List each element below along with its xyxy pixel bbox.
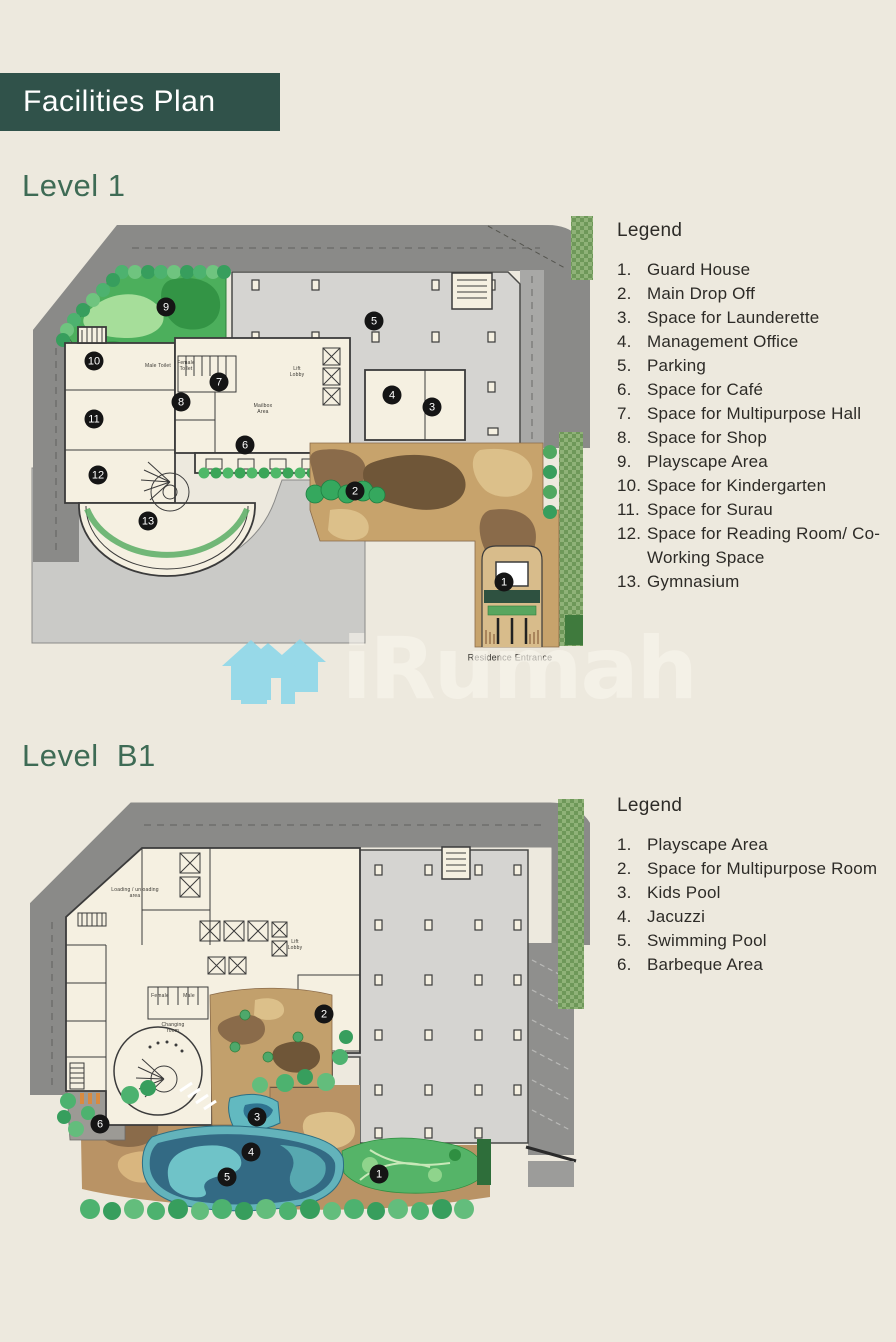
legend-item-number: 8. bbox=[617, 426, 647, 450]
legend-item: 1.Guard House bbox=[617, 258, 889, 282]
plan-marker-13: 13 bbox=[139, 512, 158, 531]
legend-items: 1.Playscape Area2.Space for Multipurpose… bbox=[617, 833, 889, 977]
legend-item-number: 9. bbox=[617, 450, 647, 474]
plan-marker-6: 6 bbox=[91, 1115, 110, 1134]
legend-item: 2.Main Drop Off bbox=[617, 282, 889, 306]
legend-item-label: Space for Multipurpose Hall bbox=[647, 402, 885, 426]
level1-plan-drawing bbox=[20, 210, 610, 670]
legend-item-label: Swimming Pool bbox=[647, 929, 885, 953]
levelb1-legend: Legend 1.Playscape Area2.Space for Multi… bbox=[617, 795, 889, 977]
legend-item-label: Main Drop Off bbox=[647, 282, 885, 306]
legend-item: 4.Jacuzzi bbox=[617, 905, 889, 929]
green-strip-bottom bbox=[559, 432, 583, 646]
legend-item-number: 3. bbox=[617, 881, 647, 905]
plan-label: Residence Entrance bbox=[468, 653, 553, 664]
legend-item: 5.Parking bbox=[617, 354, 889, 378]
legend-item-label: Space for Shop bbox=[647, 426, 885, 450]
legend-item-label: Guard House bbox=[647, 258, 885, 282]
plan-marker-1: 1 bbox=[495, 573, 514, 592]
plan-marker-5: 5 bbox=[365, 312, 384, 331]
legend-item-label: Space for Café bbox=[647, 378, 885, 402]
plan-label: Lift Lobby bbox=[288, 940, 303, 952]
legend-item: 10.Space for Kindergarten bbox=[617, 474, 889, 498]
legend-item-label: Space for Multipurpose Room bbox=[647, 857, 885, 881]
entrance-canopy bbox=[484, 590, 540, 603]
legend-item: 8.Space for Shop bbox=[617, 426, 889, 450]
plan-label: Loading / unloading area bbox=[111, 888, 158, 900]
legend-item-label: Playscape Area bbox=[647, 450, 885, 474]
page-title-band: Facilities Plan bbox=[0, 73, 280, 131]
legend-item-label: Barbeque Area bbox=[647, 953, 885, 977]
legend-item-number: 13. bbox=[617, 570, 647, 594]
legend-item-label: Management Office bbox=[647, 330, 885, 354]
plan-marker-11: 11 bbox=[85, 410, 104, 429]
plan-label: Changing room bbox=[161, 1023, 184, 1035]
legend-item-label: Kids Pool bbox=[647, 881, 885, 905]
levelb1-heading: Level B1 bbox=[22, 738, 156, 774]
legend-title: Legend bbox=[617, 220, 889, 242]
level1-heading: Level 1 bbox=[22, 168, 125, 204]
legend-item-number: 5. bbox=[617, 929, 647, 953]
plan-marker-2: 2 bbox=[346, 482, 365, 501]
plan-marker-9: 9 bbox=[157, 298, 176, 317]
legend-item: 12.Space for Reading Room/ Co-Working Sp… bbox=[617, 522, 889, 570]
legend-item-number: 4. bbox=[617, 905, 647, 929]
legend-item-number: 2. bbox=[617, 857, 647, 881]
facilities-plan-page: Facilities Plan Level 1 bbox=[0, 0, 896, 1342]
legend-item: 5.Swimming Pool bbox=[617, 929, 889, 953]
levelb1-floor-plan: Loading / unloading areaLift LobbyFemale… bbox=[30, 795, 590, 1235]
plan-label: Female Toilet bbox=[177, 361, 195, 373]
swimming-pool bbox=[142, 1126, 343, 1211]
plan-marker-4: 4 bbox=[242, 1143, 261, 1162]
plan-label: Male bbox=[183, 994, 195, 1000]
plan-marker-7: 7 bbox=[210, 373, 229, 392]
plan-marker-1: 1 bbox=[370, 1165, 389, 1184]
legend-items: 1.Guard House2.Main Drop Off3.Space for … bbox=[617, 258, 889, 594]
plan-marker-6: 6 bbox=[236, 436, 255, 455]
green-strip-top bbox=[571, 216, 593, 280]
legend-item: 1.Playscape Area bbox=[617, 833, 889, 857]
legend-item-number: 6. bbox=[617, 378, 647, 402]
green-strip bbox=[558, 799, 584, 1009]
legend-item-number: 5. bbox=[617, 354, 647, 378]
plan-label: Female bbox=[151, 994, 169, 1000]
legend-item-number: 7. bbox=[617, 402, 647, 426]
legend-item: 6.Barbeque Area bbox=[617, 953, 889, 977]
plan-label: Lift Lobby bbox=[290, 367, 305, 379]
legend-item-label: Jacuzzi bbox=[647, 905, 885, 929]
legend-item: 9.Playscape Area bbox=[617, 450, 889, 474]
legend-item: 11.Space for Surau bbox=[617, 498, 889, 522]
legend-item-number: 11. bbox=[617, 498, 647, 522]
legend-item-label: Parking bbox=[647, 354, 885, 378]
legend-item: 3.Space for Launderette bbox=[617, 306, 889, 330]
plan-label: Male Toilet bbox=[145, 364, 171, 370]
legend-item-label: Gymnasium bbox=[647, 570, 885, 594]
green-block bbox=[565, 615, 583, 645]
level1-floor-plan: Male ToiletFemale ToiletLift LobbyMailbo… bbox=[20, 210, 610, 670]
legend-item-number: 1. bbox=[617, 833, 647, 857]
legend-item-number: 3. bbox=[617, 306, 647, 330]
legend-item-number: 2. bbox=[617, 282, 647, 306]
plan-marker-4: 4 bbox=[383, 386, 402, 405]
legend-item-number: 1. bbox=[617, 258, 647, 282]
legend-item: 6.Space for Café bbox=[617, 378, 889, 402]
levelb1-plan-drawing bbox=[30, 795, 590, 1235]
legend-item-number: 12. bbox=[617, 522, 647, 570]
legend-item-number: 10. bbox=[617, 474, 647, 498]
page-title: Facilities Plan bbox=[0, 73, 280, 131]
legend-item: 4.Management Office bbox=[617, 330, 889, 354]
plan-marker-10: 10 bbox=[85, 352, 104, 371]
legend-item-label: Space for Launderette bbox=[647, 306, 885, 330]
legend-title: Legend bbox=[617, 795, 889, 817]
plan-marker-5: 5 bbox=[218, 1168, 237, 1187]
plan-marker-2: 2 bbox=[315, 1005, 334, 1024]
legend-item-label: Space for Kindergarten bbox=[647, 474, 885, 498]
legend-item-label: Playscape Area bbox=[647, 833, 885, 857]
plan-marker-3: 3 bbox=[248, 1108, 267, 1127]
legend-item: 13.Gymnasium bbox=[617, 570, 889, 594]
legend-item: 2.Space for Multipurpose Room bbox=[617, 857, 889, 881]
level1-legend: Legend 1.Guard House2.Main Drop Off3.Spa… bbox=[617, 220, 889, 594]
legend-item-label: Space for Reading Room/ Co-Working Space bbox=[647, 522, 885, 570]
legend-item-label: Space for Surau bbox=[647, 498, 885, 522]
legend-item: 3.Kids Pool bbox=[617, 881, 889, 905]
plan-marker-12: 12 bbox=[89, 466, 108, 485]
residence-entrance bbox=[482, 546, 542, 647]
plan-marker-8: 8 bbox=[172, 393, 191, 412]
legend-item-number: 6. bbox=[617, 953, 647, 977]
plan-marker-3: 3 bbox=[423, 398, 442, 417]
legend-item-number: 4. bbox=[617, 330, 647, 354]
plan-label: Mailbox Area bbox=[254, 404, 273, 416]
legend-item: 7.Space for Multipurpose Hall bbox=[617, 402, 889, 426]
